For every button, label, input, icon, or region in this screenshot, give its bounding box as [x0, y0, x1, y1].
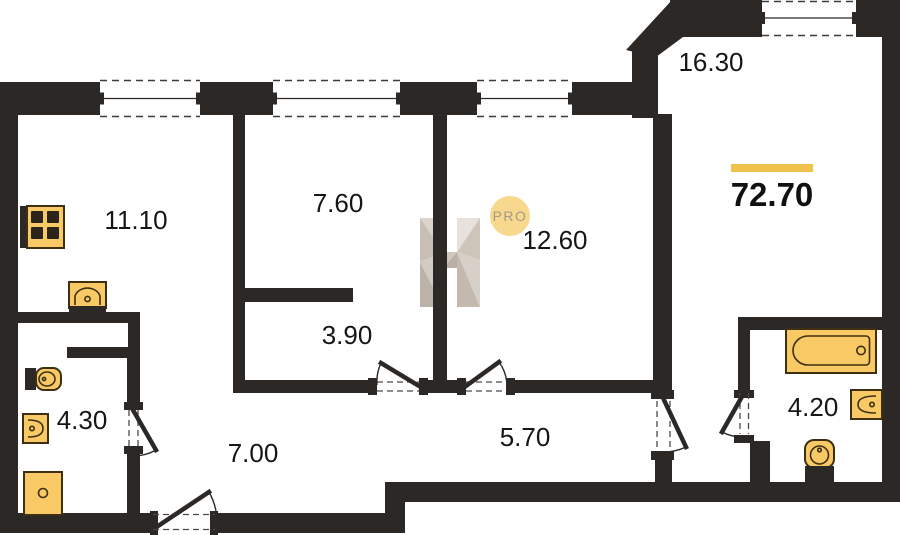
wall-segment — [515, 380, 655, 393]
window-end-cap — [196, 93, 203, 105]
wall-segment — [128, 323, 140, 347]
wall-segment — [651, 390, 674, 399]
total-area-accent-line — [731, 164, 813, 172]
wall-segment — [216, 513, 405, 533]
stove-burner — [31, 227, 43, 239]
wall-segment — [653, 114, 672, 392]
stove-burner — [47, 211, 59, 223]
window-end-cap — [474, 93, 481, 105]
window — [474, 81, 575, 117]
washer-body — [24, 472, 62, 515]
wall-segment — [856, 0, 900, 37]
total-area-value: 72.70 — [731, 176, 814, 213]
door-entrance — [153, 492, 217, 530]
small-sink-icon — [23, 414, 48, 443]
wall-segment — [400, 82, 477, 115]
sink-base — [69, 306, 106, 313]
pro-logo-text: PRO — [493, 208, 528, 224]
stove-burner — [31, 211, 43, 223]
toilet-tank — [805, 466, 834, 482]
floor-plan: PRO 11.10 7.60 12.60 16.30 3.90 4.30 7.0… — [0, 0, 900, 535]
door-room-2 — [466, 362, 507, 391]
wall-segment — [506, 378, 515, 395]
wall-sink-icon — [851, 390, 882, 419]
door-swing-arc — [664, 447, 686, 452]
door-bathroom-2 — [722, 393, 749, 437]
wall-segment — [233, 115, 245, 393]
kitchen-sink-icon — [69, 282, 106, 313]
wall-segment — [0, 513, 152, 533]
door-leaf — [133, 410, 156, 450]
sink-body — [851, 390, 882, 419]
wall-segment — [233, 380, 370, 393]
room-label-corridor: 5.70 — [500, 422, 551, 452]
window-end-cap — [270, 93, 277, 105]
room-label-kitchen: 11.10 — [104, 205, 167, 235]
door-living-room — [657, 400, 686, 452]
room-label-room-1: 7.60 — [313, 188, 364, 218]
wall-segment — [67, 347, 140, 358]
window-end-cap — [852, 12, 859, 24]
stove-icon — [20, 206, 64, 248]
wall-segment — [127, 452, 140, 513]
room-label-wardrobe: 3.90 — [322, 320, 373, 350]
door-leaf — [158, 492, 209, 526]
wall-segment — [385, 482, 900, 502]
wall-segment — [655, 458, 672, 484]
toilet-tank — [25, 368, 36, 390]
window-end-cap — [568, 93, 575, 105]
wall-segment — [18, 312, 140, 323]
wall-segment — [670, 0, 762, 37]
door-leaf — [466, 362, 499, 386]
wall-segment — [0, 82, 100, 115]
room-label-bathroom-1: 4.30 — [57, 405, 108, 435]
sink-body — [23, 414, 48, 443]
door-leaf — [722, 393, 744, 432]
washing-machine-icon — [24, 472, 62, 515]
wall-segment — [245, 288, 353, 302]
door-leaf — [664, 400, 686, 447]
room-label-bathroom-2: 4.20 — [788, 392, 839, 422]
bathtub-icon — [786, 329, 876, 373]
wall-segment — [127, 358, 140, 404]
wall-segment — [882, 37, 900, 502]
window-end-cap — [396, 93, 403, 105]
wall-segment — [368, 378, 377, 395]
wall-segment — [750, 441, 770, 482]
wall-segment — [0, 82, 18, 533]
window — [97, 81, 203, 117]
toilet-icon — [25, 368, 61, 390]
room-label-hallway: 7.00 — [228, 438, 279, 468]
room-label-living-room: 16.30 — [678, 47, 743, 77]
window — [270, 81, 403, 117]
total-area: 72.70 — [731, 164, 814, 213]
watermark-h-icon — [420, 218, 480, 307]
wall-segment — [200, 82, 273, 115]
wall-segment — [738, 330, 750, 392]
wall-segment — [428, 380, 458, 393]
window-end-cap — [758, 12, 765, 24]
door-wardrobe — [377, 363, 419, 391]
wall-segment — [433, 115, 447, 382]
window-end-cap — [97, 93, 104, 105]
floor-plan-svg: PRO 11.10 7.60 12.60 16.30 3.90 4.30 7.0… — [0, 0, 900, 535]
room-label-room-2: 12.60 — [522, 225, 587, 255]
window — [758, 2, 859, 36]
toilet-icon — [805, 440, 834, 482]
stove-burner — [47, 227, 59, 239]
